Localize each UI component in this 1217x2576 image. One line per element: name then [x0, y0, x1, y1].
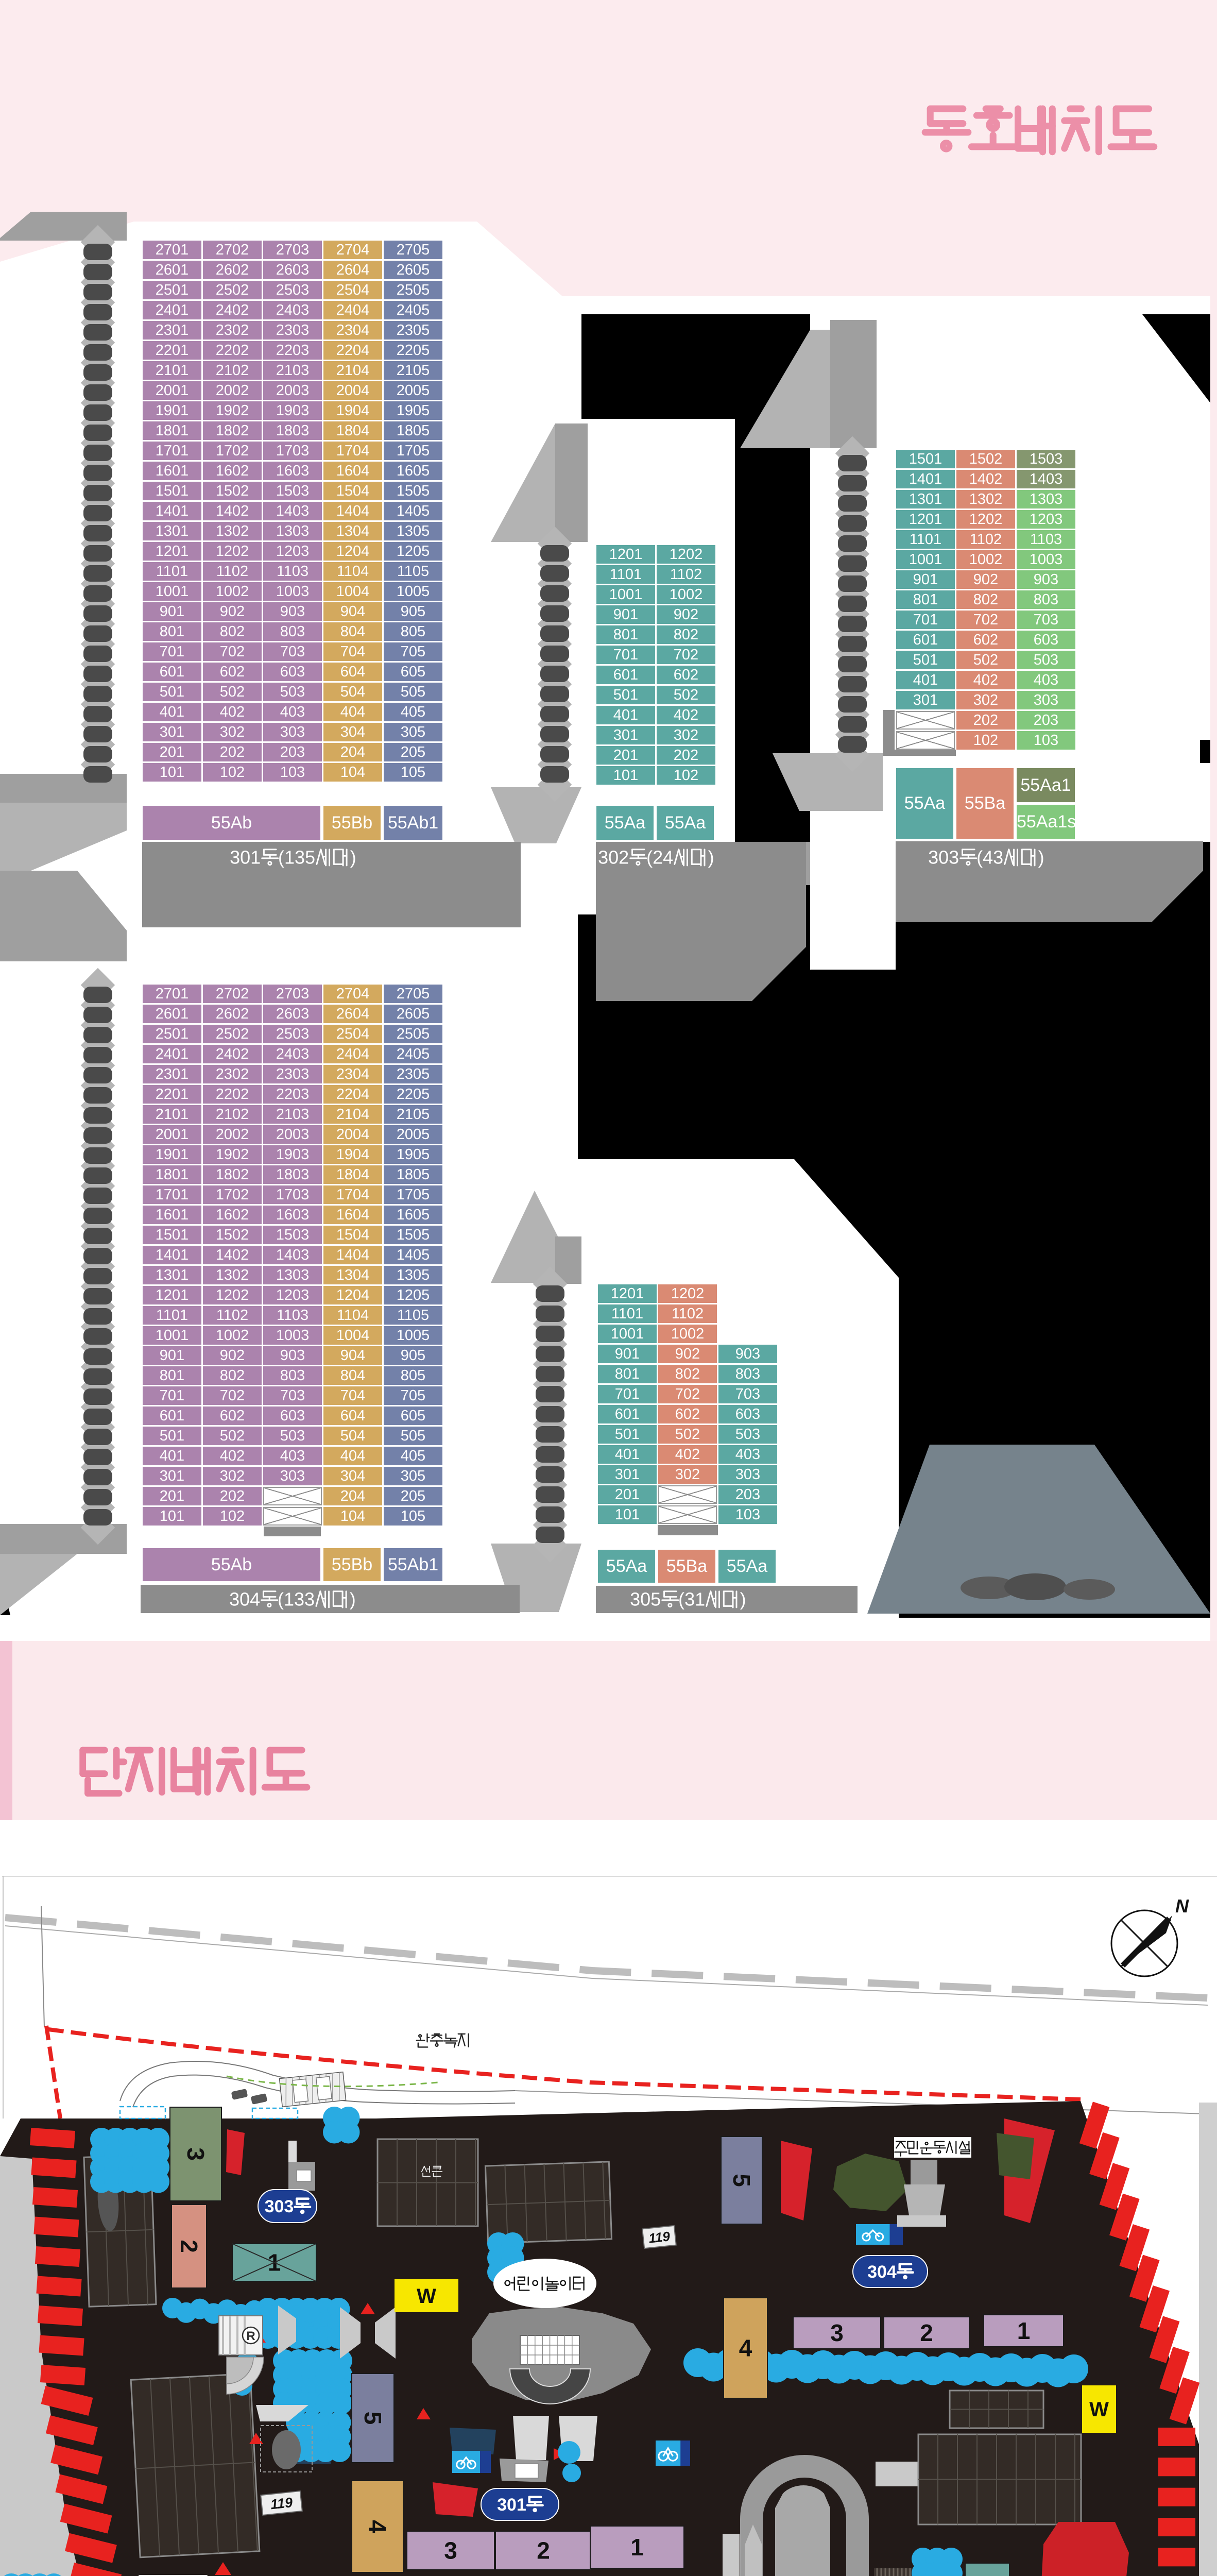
svg-text:5: 5 — [359, 2412, 386, 2425]
svg-text:N: N — [1175, 1895, 1189, 1917]
svg-text:2: 2 — [920, 2319, 933, 2346]
svg-text:305: 305 — [630, 1589, 661, 1610]
svg-text:303: 303 — [928, 847, 959, 868]
svg-text:): ) — [740, 1589, 746, 1610]
svg-text:303: 303 — [265, 2197, 294, 2216]
svg-text:5: 5 — [728, 2174, 755, 2187]
svg-text:304: 304 — [867, 2262, 897, 2282]
svg-text:301: 301 — [230, 847, 261, 868]
svg-text:(133: (133 — [278, 1589, 315, 1610]
svg-text:W: W — [1089, 2398, 1109, 2421]
svg-text:2: 2 — [537, 2537, 550, 2564]
svg-text:4: 4 — [739, 2335, 752, 2362]
svg-text:): ) — [350, 847, 356, 868]
svg-text:3: 3 — [444, 2537, 457, 2564]
svg-text:2: 2 — [176, 2240, 202, 2253]
svg-text:3: 3 — [182, 2147, 209, 2161]
svg-text:): ) — [708, 847, 714, 868]
svg-text:(24: (24 — [646, 847, 673, 868]
svg-text:(135: (135 — [278, 847, 315, 868]
svg-text:1: 1 — [1017, 2317, 1031, 2344]
svg-text:3: 3 — [830, 2319, 844, 2346]
svg-text:): ) — [1038, 847, 1044, 868]
svg-text:301: 301 — [497, 2495, 526, 2515]
svg-text:119: 119 — [648, 2228, 671, 2246]
svg-text:W: W — [417, 2285, 436, 2308]
svg-text:(31: (31 — [678, 1589, 705, 1610]
svg-text:119: 119 — [270, 2495, 294, 2512]
svg-text:): ) — [350, 1589, 356, 1610]
svg-text:R: R — [246, 2329, 255, 2343]
svg-text:304: 304 — [229, 1589, 260, 1610]
svg-text:302: 302 — [598, 847, 629, 868]
svg-text:(43: (43 — [976, 847, 1003, 868]
svg-text:4: 4 — [364, 2520, 391, 2533]
svg-text:1: 1 — [630, 2534, 644, 2561]
